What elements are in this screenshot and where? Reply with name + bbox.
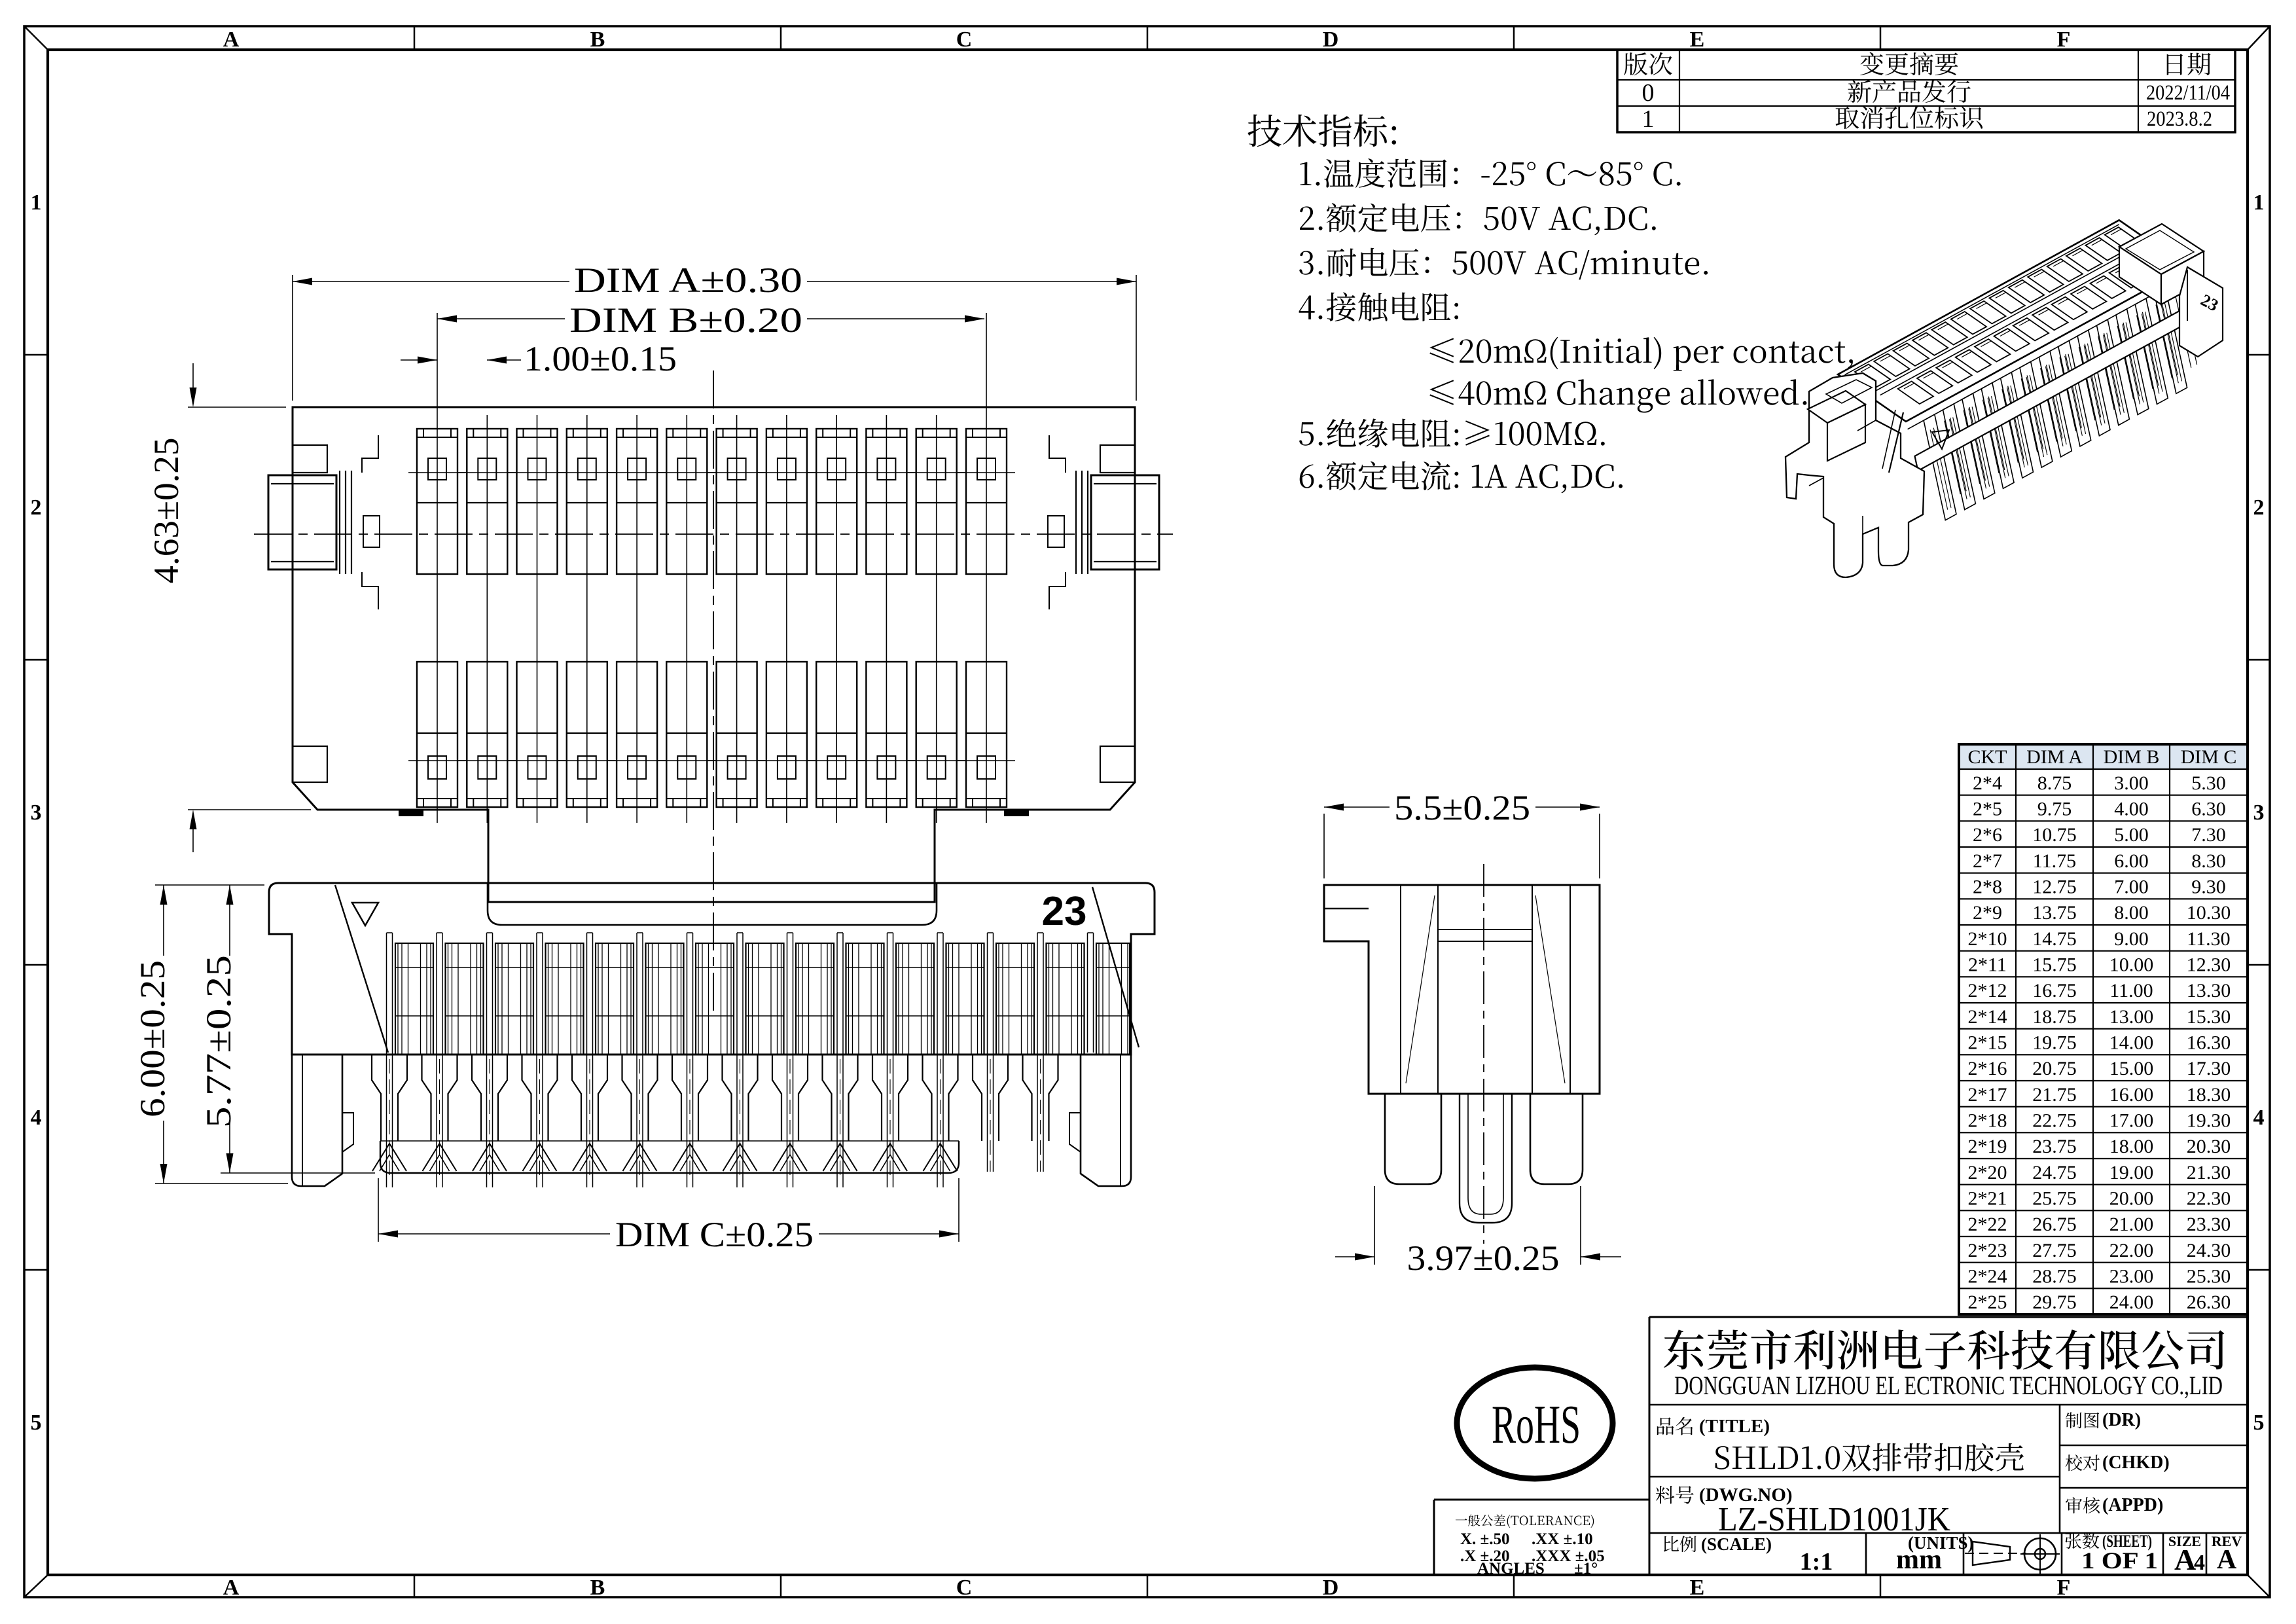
svg-text:22.30: 22.30 [2187,1188,2231,1210]
svg-text:2*4: 2*4 [1973,772,2002,794]
svg-text:20.00: 20.00 [2109,1188,2154,1210]
svg-text:DIM B±0.20: DIM B±0.20 [569,300,802,340]
svg-text:12.30: 12.30 [2187,954,2231,976]
svg-text:19.30: 19.30 [2187,1110,2231,1132]
svg-text:21.75: 21.75 [2032,1084,2077,1106]
svg-text:15.00: 15.00 [2109,1058,2154,1079]
svg-text:2*19: 2*19 [1968,1136,2007,1157]
svg-text:13.00: 13.00 [2109,1006,2154,1028]
svg-text:(TITLE): (TITLE) [1699,1416,1770,1437]
svg-text:DIM B: DIM B [2104,746,2160,768]
svg-text:17.30: 17.30 [2187,1058,2231,1079]
svg-text:C: C [956,1576,973,1600]
svg-text:9.75: 9.75 [2037,799,2072,820]
svg-text:1: 1 [1642,105,1655,133]
svg-text:8.30: 8.30 [2191,850,2226,872]
svg-text:5: 5 [31,1411,42,1435]
svg-text:5.77±0.25: 5.77±0.25 [199,955,238,1128]
svg-text:29.75: 29.75 [2032,1291,2077,1313]
svg-text:22.00: 22.00 [2109,1240,2154,1261]
svg-text:DIM A: DIM A [2026,746,2083,768]
svg-text:25.75: 25.75 [2032,1188,2077,1210]
svg-text:20.75: 20.75 [2032,1058,2077,1079]
svg-text:5.30: 5.30 [2191,772,2226,794]
svg-text:A: A [223,27,240,52]
svg-text:.XX ±.10: .XX ±.10 [1532,1530,1593,1548]
svg-text:23.00: 23.00 [2109,1266,2154,1288]
svg-text:3.00: 3.00 [2114,772,2149,794]
svg-text:ANGLES: ANGLES [1477,1560,1545,1578]
svg-text:2023.8.2: 2023.8.2 [2147,107,2212,131]
svg-text:12.75: 12.75 [2032,876,2077,898]
svg-text:DONGGUAN LIZHOU EL ECTRONIC TE: DONGGUAN LIZHOU EL ECTRONIC TECHNOLOGY C… [1674,1371,2223,1400]
svg-text:DIM C±0.25: DIM C±0.25 [615,1215,814,1254]
svg-text:24.30: 24.30 [2187,1240,2231,1261]
svg-text:11.30: 11.30 [2187,928,2230,950]
svg-text:CKT: CKT [1968,746,2007,768]
svg-text:6.00±0.25: 6.00±0.25 [133,960,172,1117]
svg-text:18.00: 18.00 [2109,1136,2154,1157]
svg-text:X. ±.50: X. ±.50 [1460,1530,1510,1548]
svg-text:15.75: 15.75 [2032,954,2077,976]
svg-text:7.00: 7.00 [2114,876,2149,898]
svg-text:E: E [1690,27,1705,52]
svg-text:16.30: 16.30 [2187,1032,2231,1054]
svg-text:(APPD): (APPD) [2102,1495,2163,1515]
svg-text:4: 4 [31,1106,42,1130]
svg-text:4: 4 [2253,1106,2265,1130]
svg-text:10.75: 10.75 [2032,824,2077,846]
svg-text:A: A [223,1576,240,1600]
svg-text:23.75: 23.75 [2032,1136,2077,1157]
svg-text:16.00: 16.00 [2109,1084,2154,1106]
svg-text:3: 3 [2253,801,2265,825]
svg-text:(DR): (DR) [2102,1410,2141,1430]
svg-text:DIM A±0.30: DIM A±0.30 [574,261,802,300]
svg-text:15.30: 15.30 [2187,1006,2231,1028]
svg-text:2: 2 [2253,496,2265,520]
svg-text:18.75: 18.75 [2032,1006,2077,1028]
svg-text:mm: mm [1896,1545,1942,1575]
svg-text:3: 3 [31,801,42,825]
svg-text:±1°: ±1° [1574,1560,1598,1578]
svg-text:E: E [1690,1576,1705,1600]
svg-text:2*15: 2*15 [1968,1032,2007,1054]
svg-text:3.97±0.25: 3.97±0.25 [1407,1238,1560,1278]
svg-text:2: 2 [31,496,42,520]
svg-text:16.75: 16.75 [2032,980,2077,1001]
svg-text:2*16: 2*16 [1968,1058,2007,1079]
svg-text:5: 5 [2253,1411,2265,1435]
svg-text:25.30: 25.30 [2187,1266,2231,1288]
svg-text:27.75: 27.75 [2032,1240,2077,1261]
svg-text:8.00: 8.00 [2114,902,2149,924]
svg-text:2*20: 2*20 [1968,1162,2007,1183]
svg-text:2*24: 2*24 [1968,1266,2007,1288]
svg-text:0: 0 [1642,79,1655,107]
svg-text:2*23: 2*23 [1968,1240,2007,1261]
svg-text:D: D [1323,1576,1339,1600]
svg-text:2*12: 2*12 [1968,980,2007,1001]
svg-text:2*9: 2*9 [1973,902,2002,924]
svg-text:4: 4 [2194,1551,2205,1575]
svg-text:2*10: 2*10 [1968,928,2007,950]
svg-text:B: B [590,27,605,52]
svg-text:26.30: 26.30 [2187,1291,2231,1313]
svg-text:4.00: 4.00 [2114,799,2149,820]
svg-text:(SCALE): (SCALE) [1701,1534,1772,1554]
svg-text:18.30: 18.30 [2187,1084,2231,1106]
svg-text:24.00: 24.00 [2109,1291,2154,1313]
svg-text:9.00: 9.00 [2114,928,2149,950]
svg-text:2*5: 2*5 [1973,799,2002,820]
svg-text:2*21: 2*21 [1968,1188,2007,1210]
svg-text:F: F [2057,27,2071,52]
svg-text:19.00: 19.00 [2109,1162,2154,1183]
svg-text:1: 1 [31,190,42,215]
svg-text:22.75: 22.75 [2032,1110,2077,1132]
svg-text:2*25: 2*25 [1968,1291,2007,1313]
svg-text:5.00: 5.00 [2114,824,2149,846]
svg-text:7.30: 7.30 [2191,824,2226,846]
svg-text:2*11: 2*11 [1968,954,2007,976]
svg-text:20.30: 20.30 [2187,1136,2231,1157]
svg-text:14.75: 14.75 [2032,928,2077,950]
svg-text:(CHKD): (CHKD) [2102,1453,2170,1473]
svg-text:26.75: 26.75 [2032,1214,2077,1235]
svg-text:1.00±0.15: 1.00±0.15 [524,339,677,378]
svg-text:13.75: 13.75 [2032,902,2077,924]
svg-text:1:1: 1:1 [1800,1548,1833,1576]
svg-text:21.30: 21.30 [2187,1162,2231,1183]
svg-text:9.30: 9.30 [2191,876,2226,898]
svg-text:19.75: 19.75 [2032,1032,2077,1054]
svg-text:D: D [1323,27,1339,52]
svg-text:2*22: 2*22 [1968,1214,2007,1235]
svg-text:C: C [956,27,973,52]
svg-text:8.75: 8.75 [2037,772,2072,794]
svg-text:5.5±0.25: 5.5±0.25 [1394,788,1530,827]
svg-text:2*8: 2*8 [1973,876,2002,898]
svg-text:F: F [2057,1576,2071,1600]
svg-text:11.75: 11.75 [2033,850,2076,872]
svg-text:6.30: 6.30 [2191,799,2226,820]
svg-text:2*18: 2*18 [1968,1110,2007,1132]
svg-text:24.75: 24.75 [2032,1162,2077,1183]
svg-text:17.00: 17.00 [2109,1110,2154,1132]
svg-text:21.00: 21.00 [2109,1214,2154,1235]
svg-text:4.63±0.25: 4.63±0.25 [147,438,186,584]
svg-text:11.00: 11.00 [2109,980,2153,1001]
svg-text:6.00: 6.00 [2114,850,2149,872]
svg-text:2*6: 2*6 [1973,824,2002,846]
svg-text:23: 23 [1042,889,1087,934]
svg-text:1: 1 [2253,190,2265,215]
svg-text:10.30: 10.30 [2187,902,2231,924]
svg-text:A: A [2174,1543,2196,1576]
svg-text:14.00: 14.00 [2109,1032,2154,1054]
svg-text:23.30: 23.30 [2187,1214,2231,1235]
svg-text:28.75: 28.75 [2032,1266,2077,1288]
svg-text:2*7: 2*7 [1973,850,2002,872]
svg-text:A: A [2217,1545,2237,1575]
svg-text:2*17: 2*17 [1968,1084,2007,1106]
svg-text:2*14: 2*14 [1968,1006,2007,1028]
svg-text:13.30: 13.30 [2187,980,2231,1001]
svg-text:1 OF 1: 1 OF 1 [2081,1547,2158,1574]
svg-text:10.00: 10.00 [2109,954,2154,976]
svg-text:RoHS: RoHS [1492,1394,1581,1455]
svg-text:B: B [590,1576,605,1600]
svg-text:DIM C: DIM C [2181,746,2237,768]
svg-text:2022/11/04: 2022/11/04 [2146,81,2230,105]
